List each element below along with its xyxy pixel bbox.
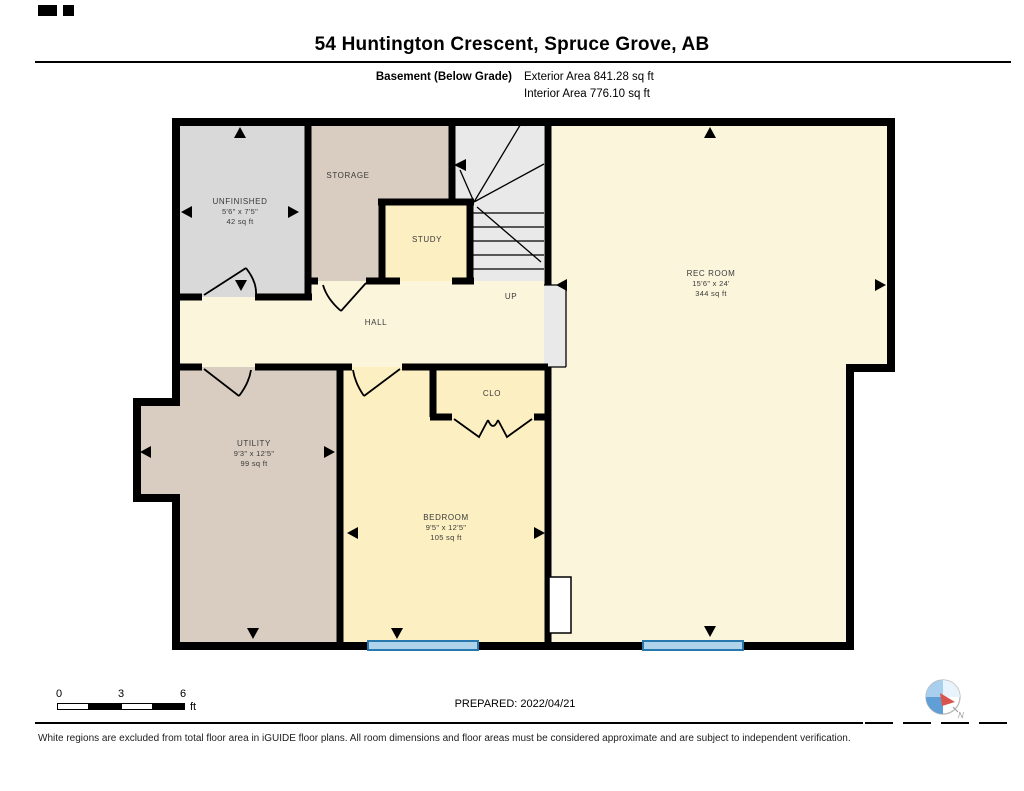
compass-icon: N: [917, 671, 971, 725]
prepared-date: PREPARED: 2022/04/21: [415, 698, 615, 710]
room-fill-bedroom: [340, 367, 548, 646]
compass-wedge: [926, 697, 943, 714]
room-label-hall: HALL: [365, 318, 387, 327]
stairs-up-label: UP: [505, 292, 517, 301]
room-name: BEDROOM: [423, 513, 469, 522]
room-label-unfinished: UNFINISHED 5'6" x 7'5" 42 sq ft: [213, 197, 268, 226]
compass-north-label: N: [958, 711, 964, 720]
room-fill-utility: [137, 367, 340, 646]
scale-bar-segment: [153, 703, 185, 710]
room-area: 42 sq ft: [213, 217, 268, 226]
room-label-bedroom: BEDROOM 9'5" x 12'5" 105 sq ft: [423, 513, 469, 542]
window-rec-room: [643, 641, 743, 650]
room-area: 105 sq ft: [423, 533, 469, 542]
room-dimensions: 9'3" x 12'5": [234, 449, 275, 458]
room-name: CLO: [483, 389, 501, 398]
scale-tick: 6: [173, 688, 193, 700]
floor-plan-page: 54 Huntington Crescent, Spruce Grove, AB…: [0, 0, 1024, 791]
room-dimensions: 9'5" x 12'5": [423, 523, 469, 532]
disclaimer-text: White regions are excluded from total fl…: [38, 733, 978, 744]
room-name: STUDY: [412, 235, 442, 244]
room-label-clo: CLO: [483, 389, 501, 398]
room-dimensions: 15'6" x 24': [687, 279, 736, 288]
room-name: UNFINISHED: [213, 197, 268, 206]
window-bedroom: [368, 641, 478, 650]
room-name: UTILITY: [234, 439, 275, 448]
room-area: 344 sq ft: [687, 289, 736, 298]
room-label-storage: STORAGE: [326, 171, 369, 180]
room-name: HALL: [365, 318, 387, 327]
compass-wedge: [943, 680, 960, 697]
scale-bar-segment: [57, 703, 89, 710]
footer-divider: [35, 722, 863, 724]
scale-tick: 0: [49, 688, 69, 700]
scale-unit-label: ft: [190, 701, 196, 713]
room-label-study: STUDY: [412, 235, 442, 244]
scale-bar-segment: [89, 703, 121, 710]
room-fill-rec: [548, 118, 891, 646]
scale-tick: 3: [111, 688, 131, 700]
room-name: REC ROOM: [687, 269, 736, 278]
scale-bar-segment: [121, 703, 153, 710]
stair-landing-strip: [544, 285, 566, 367]
room-dimensions: 5'6" x 7'5": [213, 207, 268, 216]
room-label-utility: UTILITY 9'3" x 12'5" 99 sq ft: [234, 439, 275, 468]
room-name: STORAGE: [326, 171, 369, 180]
wall-feature: [549, 577, 571, 633]
room-label-rec-room: REC ROOM 15'6" x 24' 344 sq ft: [687, 269, 736, 298]
room-area: 99 sq ft: [234, 459, 275, 468]
footer-divider-dashed: [865, 722, 1011, 724]
floor-plan-drawing: [0, 0, 1024, 791]
